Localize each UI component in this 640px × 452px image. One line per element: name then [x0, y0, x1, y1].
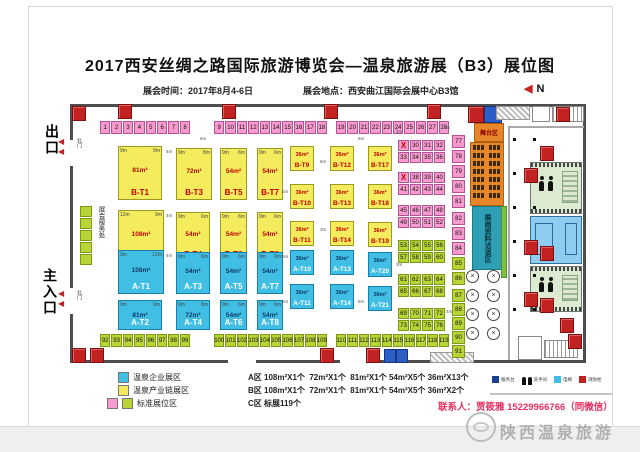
stage-seat	[493, 193, 496, 198]
stage-seat	[493, 153, 496, 158]
std-booth-66: 66	[410, 286, 421, 297]
fire-cabinet	[427, 104, 441, 119]
std-booth-111: 111	[347, 334, 357, 347]
stage-seat	[473, 177, 476, 182]
stage-seat	[497, 161, 500, 166]
exit-arrow-icon: ◀	[58, 138, 64, 146]
stage-seat	[497, 185, 500, 190]
page-title: 2017西安丝绸之路国际旅游博览会—温泉旅游展（B3）展位图	[0, 52, 640, 76]
mini-legend-item: 电梯	[554, 376, 572, 383]
yellow-swatch	[118, 385, 129, 396]
fire-cabinet	[524, 168, 538, 183]
fire-cabinet	[72, 348, 86, 363]
north-gate-label: 北门	[76, 290, 83, 300]
std-booth-101: 101	[225, 334, 235, 347]
dimension-label: 4m	[166, 150, 180, 156]
zone-c-summary: C区 标展119个	[248, 398, 301, 409]
fire-cabinet	[524, 292, 538, 307]
std-booth-90: 90	[452, 331, 465, 344]
expo-time-label: 展会时间：2017年8月4-6日	[143, 84, 253, 97]
booth-A-T13: 36m²A-T13	[330, 250, 354, 275]
service-desk-label: 展会服务处	[95, 206, 105, 239]
legend-divider	[490, 393, 612, 395]
booth-A-T5: 9m6m54m²A-T5	[220, 252, 247, 294]
std-booth-22: 22	[370, 121, 380, 134]
round-table: ×	[466, 327, 479, 340]
std-booth-20: 20	[347, 121, 357, 134]
std-booth-11: 11	[237, 121, 247, 134]
entrance-arrow-icon: ◀	[58, 290, 64, 298]
stage-seat	[489, 193, 492, 198]
std-booth-91: 91	[452, 345, 465, 358]
booth-B-T7: 9m6m54m²B-T7	[257, 148, 283, 200]
mini-legend-item: 消防栓	[579, 376, 602, 383]
round-table: ×	[466, 308, 479, 321]
stage-seat	[493, 177, 496, 182]
service-desk-cell	[80, 206, 92, 217]
std-booth-40: 40	[434, 172, 445, 183]
std-booth-34: 34	[410, 152, 421, 163]
booth-A-T20: 36m²A-T20	[368, 252, 392, 277]
std-booth-67: 67	[422, 286, 433, 297]
north-arrow-icon: ◀	[524, 83, 532, 95]
std-booth-85: 85	[452, 257, 465, 270]
dimension-label: 5m	[320, 160, 334, 166]
meeting-area-edge	[501, 206, 507, 278]
std-booth-63: 63	[422, 274, 433, 285]
std-booth-6: 6	[157, 121, 167, 134]
north-gate-label: 北门	[76, 138, 83, 148]
zone-a-summary: A区 108m²X1个 72m²X1个 81m²X1个 54m²X5个 36m²…	[248, 372, 469, 383]
std-booth-104: 104	[260, 334, 270, 347]
utility-room	[518, 336, 542, 360]
booth-B-T5: 9m6m54m²B-T5	[220, 148, 247, 200]
std-booth-43: 43	[422, 184, 433, 195]
std-booth-118: 118	[427, 334, 437, 347]
legend-item-a: 温泉企业展区	[118, 372, 181, 383]
round-table: ×	[466, 289, 479, 302]
restroom-stalls	[562, 171, 578, 203]
fire-cabinet	[90, 348, 104, 363]
booth-A-T6: 9m6m54m²A-T6	[220, 300, 247, 330]
dimension-label: 6m	[358, 137, 372, 143]
male-icon	[539, 181, 544, 191]
column-dot	[513, 206, 516, 209]
std-booth-51: 51	[422, 217, 433, 228]
fire-cabinet	[366, 348, 380, 363]
booth-B-T13: 36m²B-T13	[330, 184, 354, 209]
column-dot	[533, 138, 536, 141]
main-entrance-label: 主入口	[40, 268, 60, 316]
std-booth-98: 98	[168, 334, 178, 347]
stage-seat	[493, 161, 496, 166]
booth-A-T14: 36m²A-T14	[330, 284, 354, 309]
dimension-label: 6m	[200, 137, 214, 143]
dimension-label: 5m	[282, 255, 296, 261]
std-booth-58: 58	[410, 252, 421, 263]
std-booth-8: 8	[180, 121, 190, 134]
fire-cabinet	[524, 240, 538, 255]
sign-board	[396, 349, 408, 363]
std-booth-109: 109	[317, 334, 327, 347]
std-booth-73: 73	[398, 320, 409, 331]
std-booth-7: 7	[168, 121, 178, 134]
std-booth-48: 48	[434, 205, 445, 216]
stage-seat	[473, 161, 476, 166]
mini-legend-item: 服务台	[492, 376, 515, 383]
std-booth-76: 76	[434, 320, 445, 331]
std-booth-13: 13	[260, 121, 270, 134]
column-dot	[513, 274, 516, 277]
stage-seat	[481, 193, 484, 198]
utility-room	[532, 106, 550, 122]
std-booth-68: 68	[434, 286, 445, 297]
std-booth-42: 42	[410, 184, 421, 195]
stage-seat	[481, 169, 484, 174]
legend-label: 温泉企业展区	[133, 372, 181, 383]
stage-seat	[473, 193, 476, 198]
blue-swatch	[118, 372, 129, 383]
std-booth-1: 1	[100, 121, 110, 134]
booth-B-T1: 9m9m81m²B-T1	[118, 146, 162, 200]
column-dot	[533, 274, 536, 277]
zone-b-summary: B区 108m²X1个 72m²X1个 81m²X1个 54m²X5个 36m²…	[248, 385, 464, 396]
fire-cabinet	[72, 106, 86, 121]
fire-cabinet	[324, 104, 338, 119]
std-booth-44: 44	[434, 184, 445, 195]
wall-left-seg2	[70, 166, 73, 288]
std-booth-2: 2	[111, 121, 121, 134]
booth-B-T11: 36m²B-T11	[290, 221, 314, 246]
std-booth-27: 27	[427, 121, 437, 134]
restroom-icon	[528, 377, 532, 385]
fire-cabinet	[540, 146, 554, 161]
fire-cabinet	[568, 334, 582, 349]
std-booth-89: 89	[452, 317, 465, 330]
column-dot	[513, 172, 516, 175]
booth-A-T2: 9m9m81m²A-T2	[118, 300, 162, 330]
stage-seat	[489, 169, 492, 174]
stage-seat	[493, 185, 496, 190]
stage-seat	[477, 145, 480, 150]
stage-seat	[477, 153, 480, 158]
column-dot	[533, 308, 536, 311]
std-booth-110: 110	[336, 334, 346, 347]
service-desk-cell	[80, 242, 92, 253]
dimension-label: 4m	[446, 310, 460, 316]
booth-B-T12: 36m²B-T12	[330, 146, 354, 171]
meeting-area: 展商资料洽谈区	[472, 206, 502, 270]
service-desk-icon	[492, 376, 499, 383]
std-booth-119: 119	[439, 334, 449, 347]
std-booth-116: 116	[404, 334, 414, 347]
sign-board	[384, 349, 396, 363]
corridor-partition-top	[508, 126, 584, 128]
std-booth-75: 75	[422, 320, 433, 331]
fire-cabinet	[320, 348, 334, 363]
std-booth-38: 38	[410, 172, 421, 183]
stage-seat	[473, 145, 476, 150]
stage-seat	[477, 193, 480, 198]
std-booth-107: 107	[294, 334, 304, 347]
std-booth-33: 33	[398, 152, 409, 163]
std-booth-97: 97	[157, 334, 167, 347]
mini-legend-item: 洗手间	[522, 374, 548, 385]
booth-A-T21: 36m²A-T21	[368, 286, 392, 311]
booth-A-T8: 9m6m54m²A-T8	[257, 300, 283, 330]
column-dot	[513, 240, 516, 243]
std-booth-61: 61	[398, 274, 409, 285]
female-icon	[548, 181, 553, 191]
std-booth-39: 39	[422, 172, 433, 183]
compass: ◀N	[524, 82, 544, 95]
booth-A-T10: 36m²A-T10	[290, 250, 314, 275]
std-booth-112: 112	[359, 334, 369, 347]
std-booth-80: 80	[452, 180, 465, 193]
std-booth-62: 62	[410, 274, 421, 285]
dimension-label: 5m	[358, 300, 372, 306]
std-booth-31: 31	[422, 140, 433, 151]
booth-B-T9: 36m²B-T9	[290, 146, 314, 171]
std-booth-99: 99	[180, 334, 190, 347]
wall-right	[583, 104, 586, 363]
entrance-arrow-icon: ◀	[58, 300, 64, 308]
std-booth-36: 36	[434, 152, 445, 163]
service-desk-cell	[80, 254, 92, 265]
fire-cabinet	[540, 298, 554, 313]
fire-hydrant-icon	[579, 376, 586, 383]
std-booth-35: 35	[422, 152, 433, 163]
floorplan-poster: 2017西安丝绸之路国际旅游博览会—温泉旅游展（B3）展位图 展会时间：2017…	[0, 0, 640, 452]
watermark-text: 陕西温泉旅游	[500, 419, 614, 443]
std-booth-86: 86	[452, 272, 465, 285]
mini-legend: 服务台 洗手间 电梯 消防栓	[492, 374, 602, 385]
std-booth-64: 64	[434, 274, 445, 285]
std-booth-16: 16	[294, 121, 304, 134]
std-booth-65: 65	[398, 286, 409, 297]
std-booth-83: 83	[452, 227, 465, 240]
booth-B-T17: 36m²B-T17	[368, 146, 392, 171]
fire-cabinet	[560, 318, 574, 333]
fire-cabinet	[556, 107, 570, 122]
std-booth-92: 92	[100, 334, 110, 347]
booth-A-T1: 9m12m108m²A-T1	[118, 250, 164, 294]
std-booth-4: 4	[134, 121, 144, 134]
restroom-icon	[522, 377, 526, 385]
stage-seat	[481, 161, 484, 166]
legend-label: 标准展位区	[137, 398, 177, 409]
std-booth-18: 18	[317, 121, 327, 134]
female-icon	[548, 282, 553, 292]
hatched-block	[496, 106, 530, 120]
stage-seat	[497, 153, 500, 158]
fire-cabinet	[222, 104, 236, 119]
booth-B-T3: 9m8m72m²B-T3	[176, 148, 212, 200]
std-booth-87: 87	[452, 289, 465, 302]
std-booth-79: 79	[452, 165, 465, 178]
std-booth-26: 26	[416, 121, 426, 134]
dimension-label: 1m	[444, 126, 458, 132]
fire-cabinet	[118, 104, 132, 119]
std-booth-60: 60	[434, 252, 445, 263]
std-booth-14: 14	[271, 121, 281, 134]
restroom-stalls	[562, 275, 578, 301]
column-dot	[513, 308, 516, 311]
service-desk-cell	[80, 218, 92, 229]
std-booth-71: 71	[422, 308, 433, 319]
std-booth-52: 52	[434, 217, 445, 228]
round-table: ×	[487, 289, 500, 302]
round-table: ×	[487, 327, 500, 340]
booth-A-T3: 9m6m54m²A-T3	[176, 252, 210, 294]
exit-arrow-icon: ◀	[58, 148, 64, 156]
std-booth-77: 77	[452, 135, 465, 148]
stage-seat	[489, 161, 492, 166]
dimension-label: 5m	[282, 190, 296, 196]
dimension-label: 4m	[166, 214, 180, 220]
stage-seat	[473, 169, 476, 174]
std-booth-108: 108	[305, 334, 315, 347]
std-booth-82: 82	[452, 212, 465, 225]
dimension-label: 3m	[396, 263, 410, 269]
std-booth-15: 15	[282, 121, 292, 134]
std-booth-102: 102	[237, 334, 247, 347]
std-booth-21: 21	[359, 121, 369, 134]
stage-seat	[493, 145, 496, 150]
green-swatch	[122, 398, 133, 409]
meeting-area-label: 展商资料洽谈区	[482, 214, 492, 263]
dimension-label: 3m	[320, 228, 334, 234]
std-booth-113: 113	[370, 334, 380, 347]
stage-seat	[489, 177, 492, 182]
std-booth-23: 23	[382, 121, 392, 134]
stage-seat	[477, 177, 480, 182]
std-booth-32: 32	[434, 140, 445, 151]
pink-swatch	[107, 398, 118, 409]
legend-item-b: 温泉产业链展区	[118, 385, 189, 396]
std-booth-95: 95	[134, 334, 144, 347]
std-booth-94: 94	[123, 334, 133, 347]
stage-seat	[489, 185, 492, 190]
std-booth-54: 54	[410, 240, 421, 251]
std-booth-30: 30	[410, 140, 421, 151]
std-booth-46: 46	[410, 205, 421, 216]
std-booth-74: 74	[410, 320, 421, 331]
dimension-label: 4m	[166, 254, 180, 260]
elevator-icon	[554, 376, 561, 383]
service-desk-cell	[80, 230, 92, 241]
stage-seat	[493, 169, 496, 174]
std-booth-5: 5	[146, 121, 156, 134]
std-booth-117: 117	[416, 334, 426, 347]
std-booth-114: 114	[382, 334, 392, 347]
booth-A-T4: 9m8m72m²A-T4	[176, 300, 210, 330]
stage-seat	[497, 193, 500, 198]
stage-seat	[497, 177, 500, 182]
column-dot	[533, 206, 536, 209]
stage-seat	[481, 185, 484, 190]
stage-seat	[473, 153, 476, 158]
legend-item-c: 标准展位区	[107, 398, 177, 409]
round-table: ×	[487, 270, 500, 283]
std-booth-3: 3	[123, 121, 133, 134]
std-booth-10: 10	[225, 121, 235, 134]
corridor-partition	[508, 126, 510, 360]
stage-seat	[489, 153, 492, 158]
std-booth-12: 12	[248, 121, 258, 134]
column-dot	[513, 138, 516, 141]
std-booth-72: 72	[434, 308, 445, 319]
watermark-logo	[466, 412, 496, 442]
std-booth-103: 103	[248, 334, 258, 347]
male-icon	[539, 282, 544, 292]
std-booth-47: 47	[422, 205, 433, 216]
contact-info: 联系人：贾筱雅 15229966766（同微信）	[438, 399, 613, 413]
booth-A-T7: 9m6m54m²A-T7	[257, 252, 283, 294]
round-table: ×	[466, 270, 479, 283]
std-booth-96: 96	[146, 334, 156, 347]
fire-cabinet	[468, 106, 484, 123]
booth-B-T18: 36m²B-T18	[368, 184, 392, 209]
std-booth-50: 50	[410, 217, 421, 228]
std-booth-17: 17	[305, 121, 315, 134]
stage-seat	[497, 145, 500, 150]
stage-seat	[481, 153, 484, 158]
stage-seat	[473, 185, 476, 190]
stage-seat	[481, 177, 484, 182]
std-booth-55: 55	[422, 240, 433, 251]
stage-seat	[477, 185, 480, 190]
std-booth-53: 53	[398, 240, 409, 251]
booth-B-T10: 36m²B-T10	[290, 184, 314, 209]
fire-point-marker: X	[398, 140, 409, 151]
std-booth-9: 9	[214, 121, 224, 134]
std-booth-56: 56	[434, 240, 445, 251]
std-booth-115: 115	[393, 334, 403, 347]
std-booth-84: 84	[452, 242, 465, 255]
stage-seat	[481, 145, 484, 150]
fire-point-marker: X	[398, 172, 409, 183]
round-table: ×	[487, 308, 500, 321]
stage-seat	[477, 161, 480, 166]
stage-seat	[489, 145, 492, 150]
dimension-label: 3m	[396, 130, 410, 136]
stage-seat	[497, 169, 500, 174]
booth-B-T19: 36m²B-T19	[368, 222, 392, 247]
std-booth-78: 78	[452, 150, 465, 163]
std-booth-69: 69	[398, 308, 409, 319]
expo-place-label: 展会地点：西安曲江国际会展中心B3馆	[303, 84, 459, 97]
legend-label: 温泉产业链展区	[133, 385, 189, 396]
std-booth-41: 41	[398, 184, 409, 195]
std-booth-45: 45	[398, 205, 409, 216]
std-booth-49: 49	[398, 217, 409, 228]
std-booth-105: 105	[271, 334, 281, 347]
dimension-label: 5m	[282, 300, 296, 306]
std-booth-19: 19	[336, 121, 346, 134]
fire-cabinet	[540, 246, 554, 261]
stage-area-label: 舞台区	[474, 123, 504, 142]
std-booth-81: 81	[452, 195, 465, 208]
std-booth-70: 70	[410, 308, 421, 319]
std-booth-106: 106	[282, 334, 292, 347]
stage-seat	[477, 169, 480, 174]
std-booth-93: 93	[111, 334, 121, 347]
std-booth-59: 59	[422, 252, 433, 263]
std-booth-100: 100	[214, 334, 224, 347]
compass-n-label: N	[536, 83, 544, 95]
